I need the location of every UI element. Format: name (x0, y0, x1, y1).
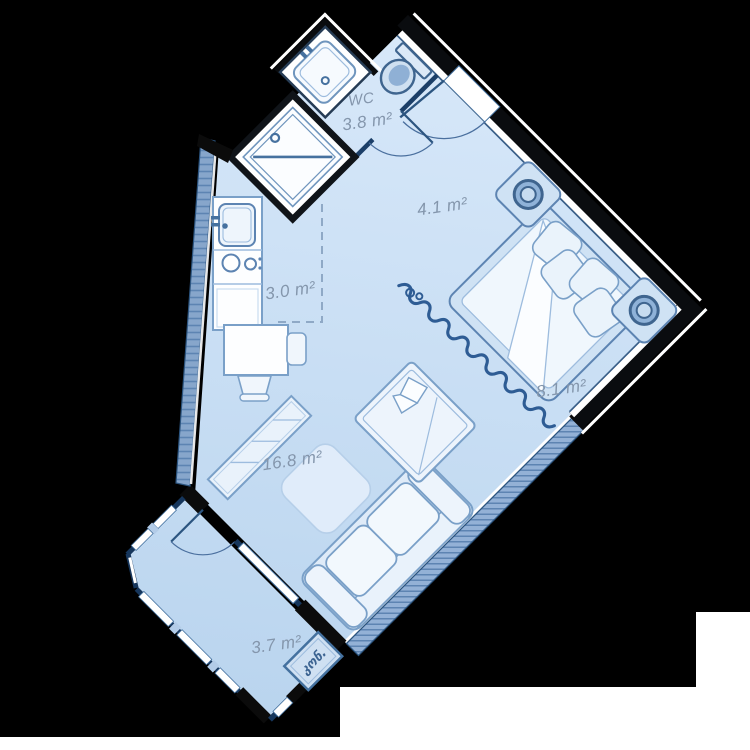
floor-plan-stage: კონ. WC 3.8 m² 4.1 m² 3.0 m² 8.1 m² 16.8… (0, 0, 750, 750)
page-corner (340, 687, 750, 750)
dining-table (224, 325, 288, 375)
stove-knob-icon (258, 266, 261, 269)
floor-plan-svg: კონ. WC 3.8 m² 4.1 m² 3.0 m² 8.1 m² 16.8… (0, 0, 750, 750)
faucet-icon (211, 223, 220, 227)
kitchen-unit (211, 197, 262, 330)
room-label-wc-name: WC (347, 89, 375, 109)
faucet-icon (211, 216, 220, 220)
stove-burner-icon (223, 255, 240, 272)
faucet-knob-icon (222, 223, 228, 229)
chair (287, 333, 306, 365)
chair-back (240, 394, 269, 401)
stove-knob-icon (258, 257, 261, 260)
stove-burner-icon (245, 259, 256, 270)
